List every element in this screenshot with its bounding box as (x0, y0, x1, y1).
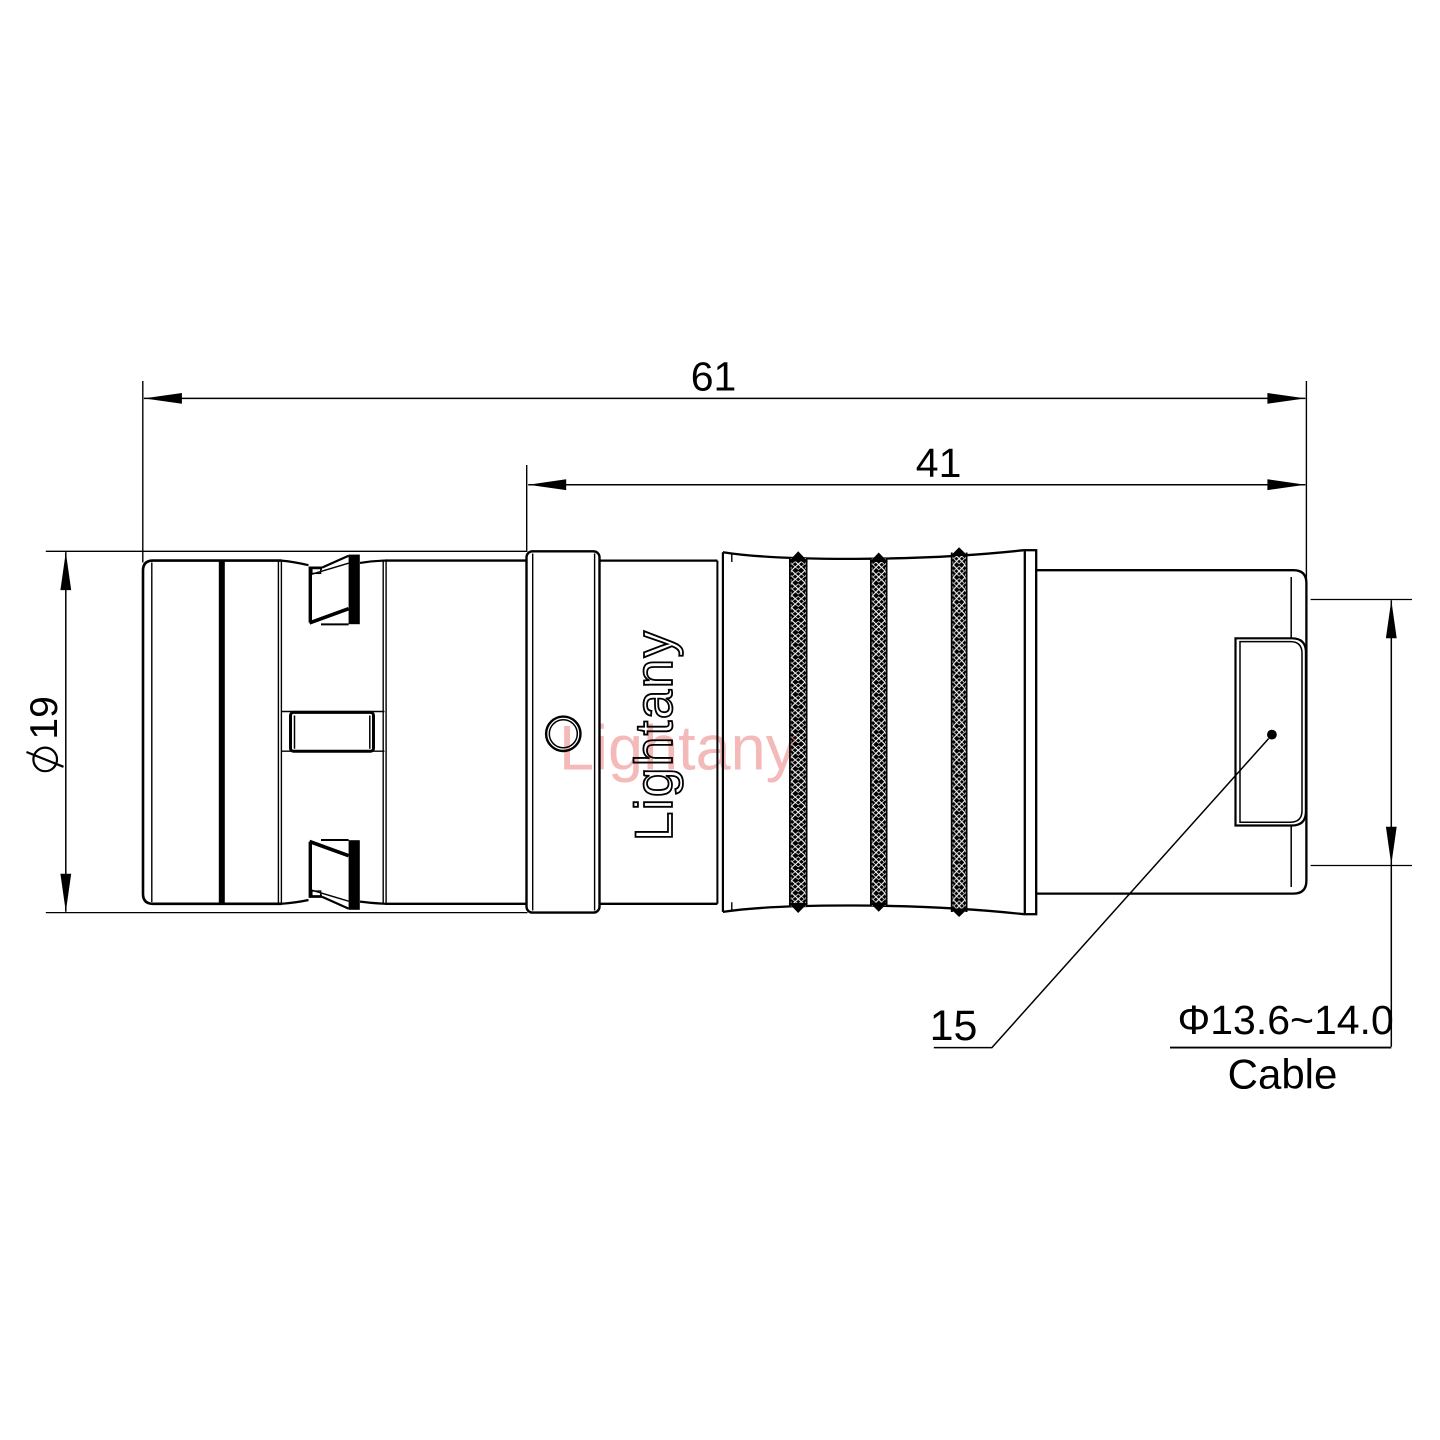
svg-text:Φ13.6~14.0: Φ13.6~14.0 (1178, 997, 1394, 1043)
svg-text:Lightany: Lightany (559, 714, 798, 784)
svg-text:61: 61 (691, 354, 737, 400)
svg-text:41: 41 (916, 440, 962, 486)
svg-text:Cable: Cable (1228, 1050, 1338, 1097)
svg-text:15: 15 (930, 1002, 978, 1050)
svg-text:19: 19 (23, 696, 66, 739)
